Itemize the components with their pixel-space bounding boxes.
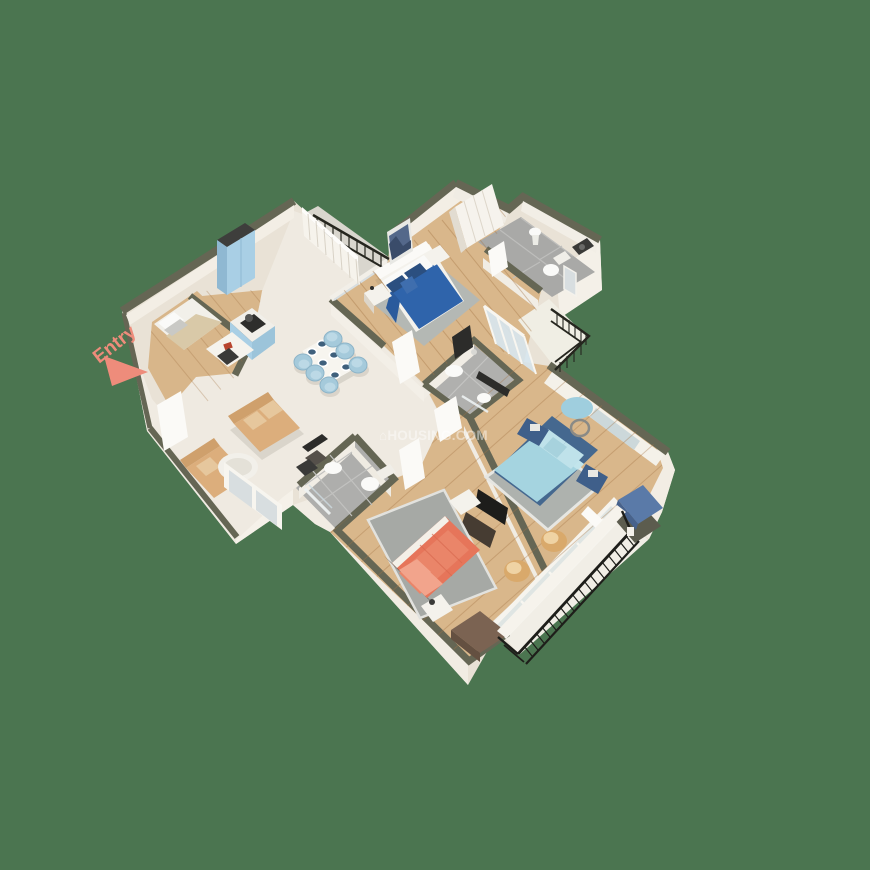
svg-text:⌂HOUSING.COM: ⌂HOUSING.COM [379,428,488,443]
